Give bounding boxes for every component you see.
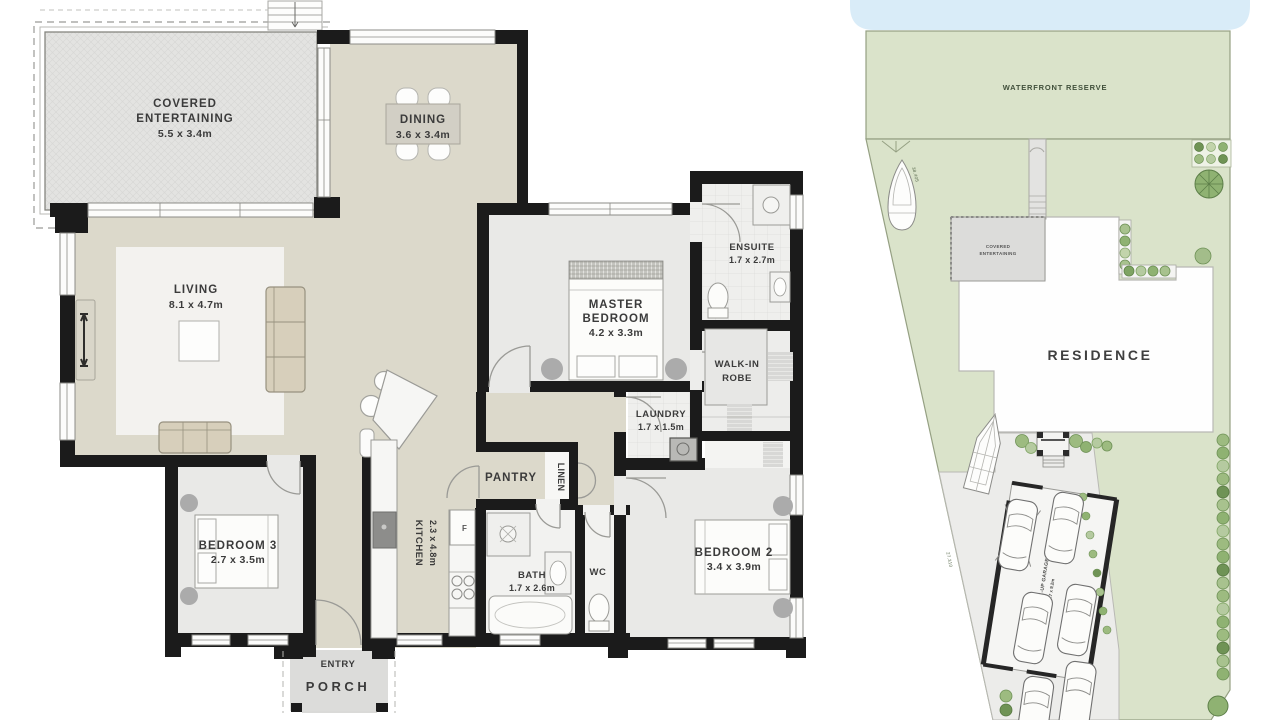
svg-text:BEDROOM: BEDROOM [582,313,649,325]
svg-text:COVERED: COVERED [153,98,217,110]
svg-text:8.1 x 4.7m: 8.1 x 4.7m [169,299,223,311]
svg-text:COVERED: COVERED [986,244,1011,249]
svg-text:LIVING: LIVING [174,284,218,296]
svg-text:ENSUITE: ENSUITE [729,242,774,253]
svg-text:4.2 x 3.3m: 4.2 x 3.3m [589,327,643,339]
svg-text:ENTRY: ENTRY [321,659,356,670]
svg-text:BEDROOM 3: BEDROOM 3 [199,540,278,552]
svg-text:3.6 x 3.4m: 3.6 x 3.4m [396,129,450,141]
svg-text:BATH: BATH [518,570,546,581]
svg-text:1.7 x 2.6m: 1.7 x 2.6m [509,583,555,593]
svg-text:3.4 x 3.9m: 3.4 x 3.9m [707,561,761,573]
svg-text:MASTER: MASTER [589,299,644,311]
svg-text:BEDROOM 2: BEDROOM 2 [695,547,774,559]
svg-text:2.3 x 4.8m: 2.3 x 4.8m [428,520,438,566]
svg-text:WALK-IN: WALK-IN [715,359,760,370]
svg-text:WATERFRONT RESERVE: WATERFRONT RESERVE [1003,83,1108,92]
svg-text:27.310: 27.310 [945,552,953,568]
svg-text:KITCHEN: KITCHEN [413,520,424,566]
svg-text:PANTRY: PANTRY [485,472,537,484]
svg-text:ROBE: ROBE [722,373,752,384]
svg-text:WC: WC [589,567,606,578]
svg-text:RESIDENCE: RESIDENCE [1047,347,1152,363]
svg-text:5.5 x 3.4m: 5.5 x 3.4m [158,128,212,140]
svg-text:LINEN: LINEN [556,463,566,492]
svg-text:LAUNDRY: LAUNDRY [636,409,686,420]
svg-text:PORCH: PORCH [306,679,370,694]
svg-text:1.7 x 1.5m: 1.7 x 1.5m [638,422,684,432]
svg-text:DINING: DINING [400,114,446,126]
svg-text:2.7 x 3.5m: 2.7 x 3.5m [211,554,265,566]
svg-text:ENTERTAINING: ENTERTAINING [136,113,233,125]
svg-text:ENTERTAINING: ENTERTAINING [979,251,1016,256]
svg-text:F: F [462,524,467,533]
svg-text:1.7 x 2.7m: 1.7 x 2.7m [729,255,775,265]
